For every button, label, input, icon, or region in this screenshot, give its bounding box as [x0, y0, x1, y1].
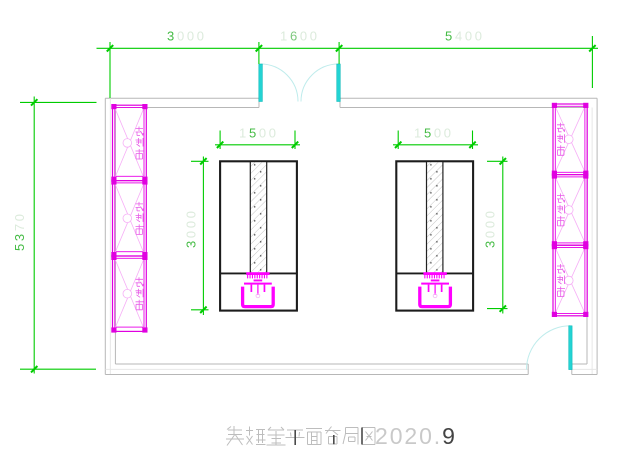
svg-text:1500: 1500 [239, 125, 279, 140]
svg-text:1600: 1600 [280, 29, 320, 44]
svg-text:2020.9: 2020.9 [375, 423, 457, 449]
svg-text:3000: 3000 [167, 29, 207, 44]
svg-text:5400: 5400 [445, 29, 485, 44]
svg-text:1500: 1500 [414, 125, 454, 140]
svg-text:3000: 3000 [184, 208, 199, 248]
svg-text:5370: 5370 [12, 211, 27, 251]
svg-text:3000: 3000 [483, 208, 498, 248]
